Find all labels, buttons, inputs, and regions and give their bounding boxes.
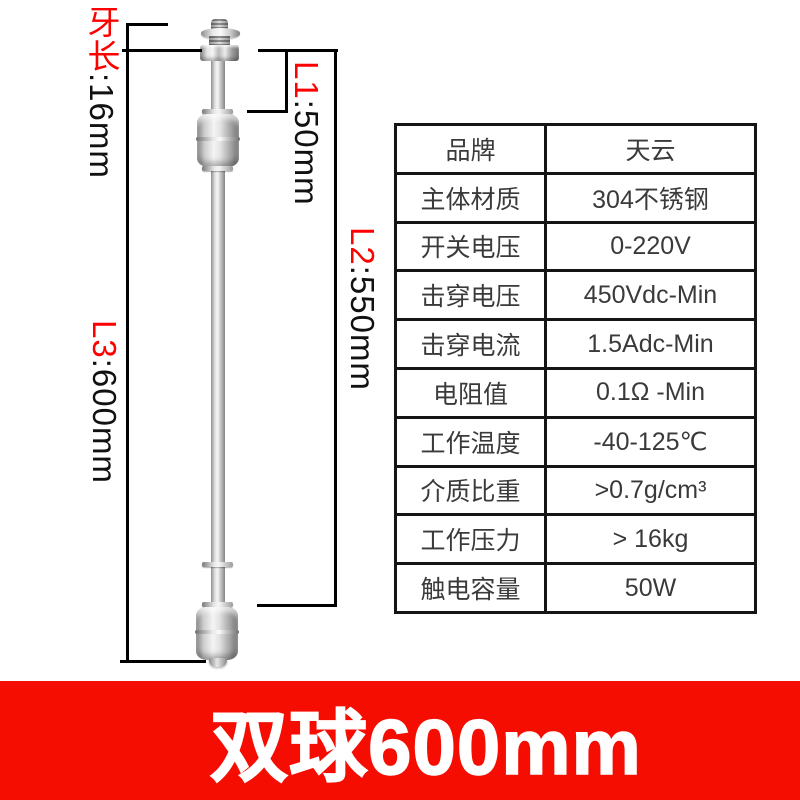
spec-value-breakdown-voltage: 450Vdc-Min [547, 272, 754, 318]
spec-value-switch-voltage: 0-220V [547, 224, 754, 270]
spec-value-working-temp: -40-125℃ [547, 419, 754, 465]
spec-value-medium-gravity: >0.7g/cm³ [547, 468, 754, 514]
spec-label-switch-voltage: 开关电压 [397, 224, 544, 270]
spec-value-brand: 天云 [547, 126, 754, 172]
spec-label-resistance: 电阻值 [397, 370, 544, 416]
dim-label-thread-length-value: :16mm [83, 73, 120, 179]
dim-tick-thread-bottom [122, 49, 202, 52]
dim-label-l1: L1:50mm [287, 61, 325, 206]
dim-label-thread-length-name: 牙长 [83, 5, 120, 73]
spec-label-breakdown-current: 击穿电流 [397, 321, 544, 367]
stop-ring-top-lower [202, 166, 233, 171]
spec-label-brand: 品牌 [397, 126, 544, 172]
dim-label-l3-value: :600mm [86, 359, 123, 484]
spec-table: 品牌 天云 主体材质 304不锈钢 开关电压 0-220V 击穿电压 450Vd… [394, 123, 757, 614]
hex-nut [200, 45, 239, 61]
dim-tick-l3-bottom [120, 660, 206, 663]
top-float-ball [197, 114, 239, 167]
dim-label-l2-value: :550mm [344, 266, 381, 391]
dim-line-left-vertical [126, 23, 129, 663]
dim-label-l2-name: L2 [344, 227, 381, 266]
dim-tick-l2-bottom [257, 604, 337, 607]
spec-value-resistance: 0.1Ω -Min [547, 370, 754, 416]
dim-label-l1-name: L1 [288, 61, 325, 100]
dim-tick-l1-bottom [247, 110, 288, 113]
spec-label-breakdown-voltage: 击穿电压 [397, 272, 544, 318]
dim-label-l2: L2:550mm [343, 227, 381, 391]
spec-value-body-material: 304不锈钢 [547, 175, 754, 221]
dim-tick-top-right [258, 49, 338, 52]
spec-label-working-pressure: 工作压力 [397, 516, 544, 562]
stop-ring-bottom-upper [202, 562, 233, 567]
spec-label-medium-gravity: 介质比重 [397, 468, 544, 514]
product-size-banner: 双球600mm [0, 681, 800, 800]
spec-value-working-pressure: > 16kg [547, 516, 754, 562]
spec-value-contact-capacity: 50W [547, 565, 754, 611]
spec-value-breakdown-current: 1.5Adc-Min [547, 321, 754, 367]
spec-label-contact-capacity: 触电容量 [397, 565, 544, 611]
dim-label-l3: L3:600mm [85, 320, 123, 484]
dim-tick-thread-top [126, 23, 168, 26]
spec-label-body-material: 主体材质 [397, 175, 544, 221]
dim-label-l1-value: :50mm [288, 100, 325, 206]
bottom-float-ball [196, 607, 238, 660]
dim-label-thread-length: 牙长:16mm [82, 5, 120, 179]
spec-label-working-temp: 工作温度 [397, 419, 544, 465]
dim-label-l3-name: L3 [86, 320, 123, 359]
product-image: 牙长:16mm L1:50mm L2:550mm L3:600mm 品牌 天云 … [0, 0, 800, 800]
dim-line-l2-vertical [334, 49, 337, 607]
rod-end-cap [209, 658, 227, 667]
banner-title: 双球600mm [210, 685, 642, 797]
